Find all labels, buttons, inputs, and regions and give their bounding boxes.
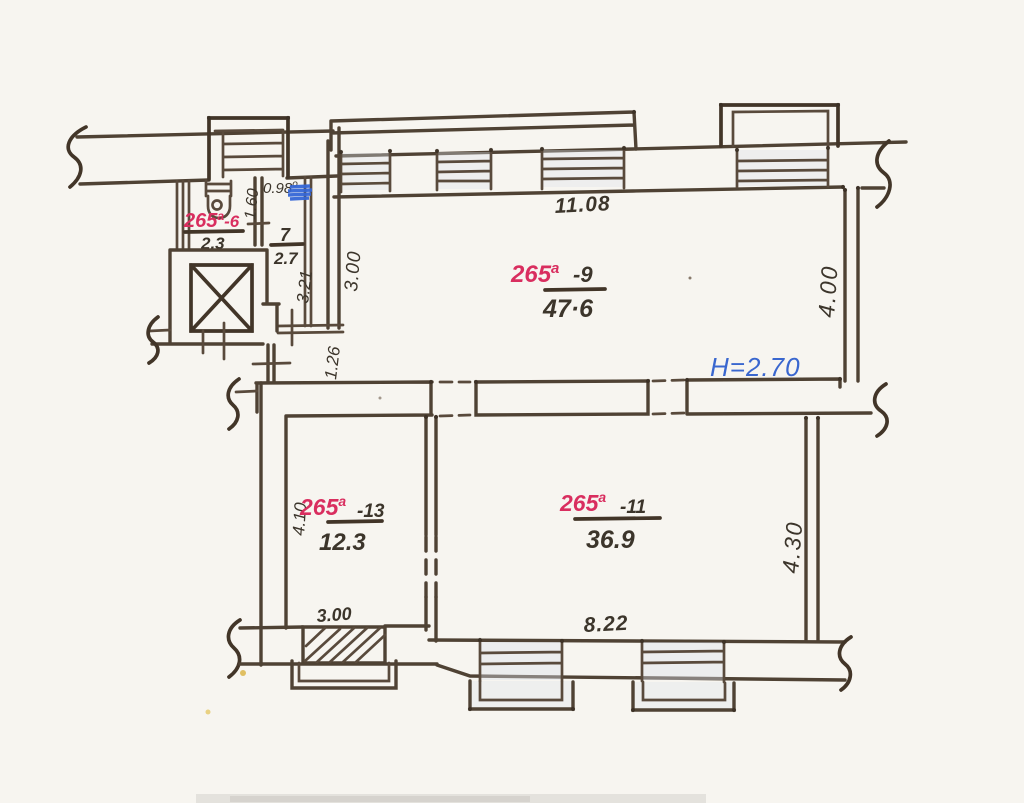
svg-text:7: 7 <box>280 225 291 245</box>
svg-text:-9: -9 <box>573 262 593 287</box>
svg-text:3.00: 3.00 <box>316 604 352 626</box>
svg-text:-13: -13 <box>357 501 385 522</box>
svg-text:36.9: 36.9 <box>586 526 635 554</box>
svg-text:1.26: 1.26 <box>321 345 344 381</box>
svg-text:2.7: 2.7 <box>273 249 299 268</box>
svg-text:8.22: 8.22 <box>583 612 629 637</box>
svg-text:4.30: 4.30 <box>777 520 807 575</box>
svg-text:H=2.70: H=2.70 <box>710 352 801 382</box>
svg-text:11.08: 11.08 <box>554 192 611 218</box>
svg-text:3.00: 3.00 <box>341 250 365 293</box>
svg-text:265а-6: 265а-6 <box>183 209 240 232</box>
svg-text:4.00: 4.00 <box>813 264 843 318</box>
svg-text:1.60: 1.60 <box>242 188 262 221</box>
svg-text:12.3: 12.3 <box>319 529 366 556</box>
svg-text:47·6: 47·6 <box>542 295 594 323</box>
svg-text:-11: -11 <box>620 497 646 518</box>
svg-text:3.21: 3.21 <box>293 269 316 304</box>
